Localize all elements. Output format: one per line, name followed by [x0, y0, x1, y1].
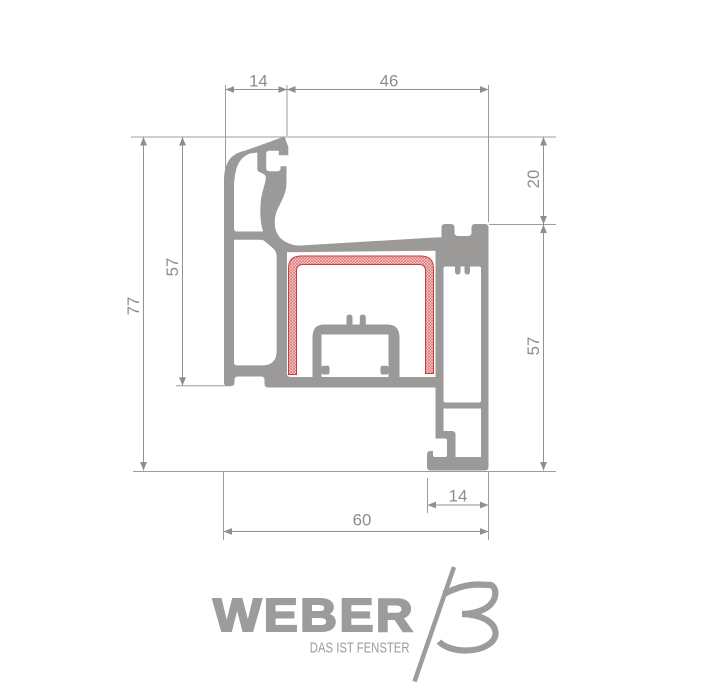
svg-text:14: 14 [249, 72, 268, 91]
svg-text:57: 57 [524, 337, 543, 356]
svg-text:DAS IST FENSTER: DAS IST FENSTER [310, 639, 410, 656]
svg-text:20: 20 [524, 170, 543, 189]
svg-text:WEBER: WEBER [213, 590, 415, 641]
svg-text:60: 60 [353, 511, 372, 530]
svg-text:57: 57 [163, 258, 182, 277]
svg-text:77: 77 [124, 297, 143, 316]
svg-text:14: 14 [449, 487, 468, 506]
svg-text:46: 46 [380, 72, 399, 91]
